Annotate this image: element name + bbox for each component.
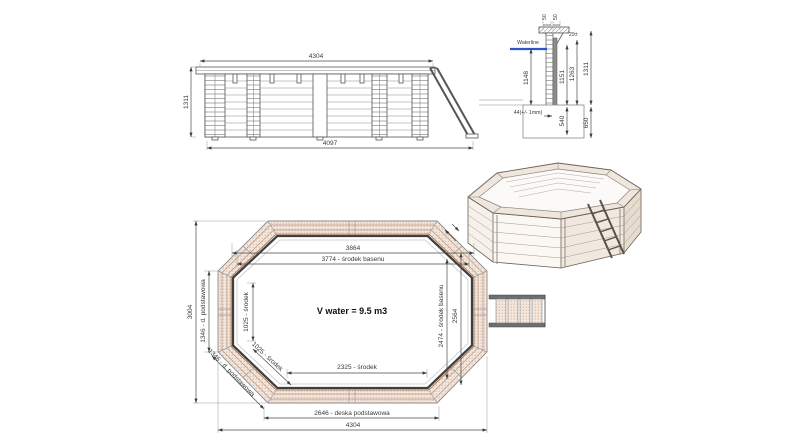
dim-1263: 1263 bbox=[569, 66, 576, 81]
dim-3774: 3774 - środek basenu bbox=[322, 256, 385, 263]
dim-1311-section: 1311 bbox=[583, 62, 590, 76]
section-view: Waterline 50 50 29± 1148 1151 1263 1311 … bbox=[479, 14, 591, 138]
dim-1151: 1151 bbox=[559, 70, 566, 84]
dim-3864: 3864 bbox=[346, 245, 361, 252]
dim-29: 29± bbox=[569, 32, 578, 38]
dim-1148: 1148 bbox=[523, 71, 530, 85]
drawing-svg: 4304 1311 4097 Waterline bbox=[0, 0, 794, 446]
dim-50-left: 50 bbox=[542, 14, 548, 20]
dim-elevation-bottom: 4097 bbox=[323, 140, 338, 147]
perspective-view bbox=[468, 163, 641, 268]
dim-2564: 2564 bbox=[452, 308, 459, 323]
plan-ladder bbox=[489, 295, 545, 327]
dim-44: 44(+/- 1mm) bbox=[514, 110, 543, 116]
dim-2646: 2646 - deska podstawowa bbox=[314, 410, 390, 417]
dim-1025-vertical: 1025 - środek bbox=[243, 291, 250, 331]
dim-elevation-top: 4304 bbox=[309, 53, 324, 60]
dim-2325: 2325 - środek bbox=[337, 364, 377, 371]
elevation-ladder bbox=[430, 68, 478, 138]
dim-4304-plan: 4304 bbox=[346, 422, 361, 429]
dim-elevation-left: 1311 bbox=[183, 95, 190, 109]
elevation-feet bbox=[212, 137, 423, 140]
dim-50-right: 50 bbox=[553, 14, 559, 20]
elevation-view: 4304 1311 4097 bbox=[183, 53, 478, 150]
dim-1346-vertical: 1346 - d. podstawowa bbox=[200, 279, 207, 343]
dim-2474: 2474 - środek basenu bbox=[438, 284, 445, 347]
dim-650: 650 bbox=[583, 117, 590, 128]
waterline-label: Waterline bbox=[517, 40, 539, 46]
dim-540: 540 bbox=[559, 115, 566, 126]
pool-technical-drawing: 4304 1311 4097 Waterline bbox=[0, 0, 794, 446]
dim-3004: 3004 bbox=[187, 304, 194, 319]
volume-label: V water = 9.5 m3 bbox=[317, 306, 387, 316]
